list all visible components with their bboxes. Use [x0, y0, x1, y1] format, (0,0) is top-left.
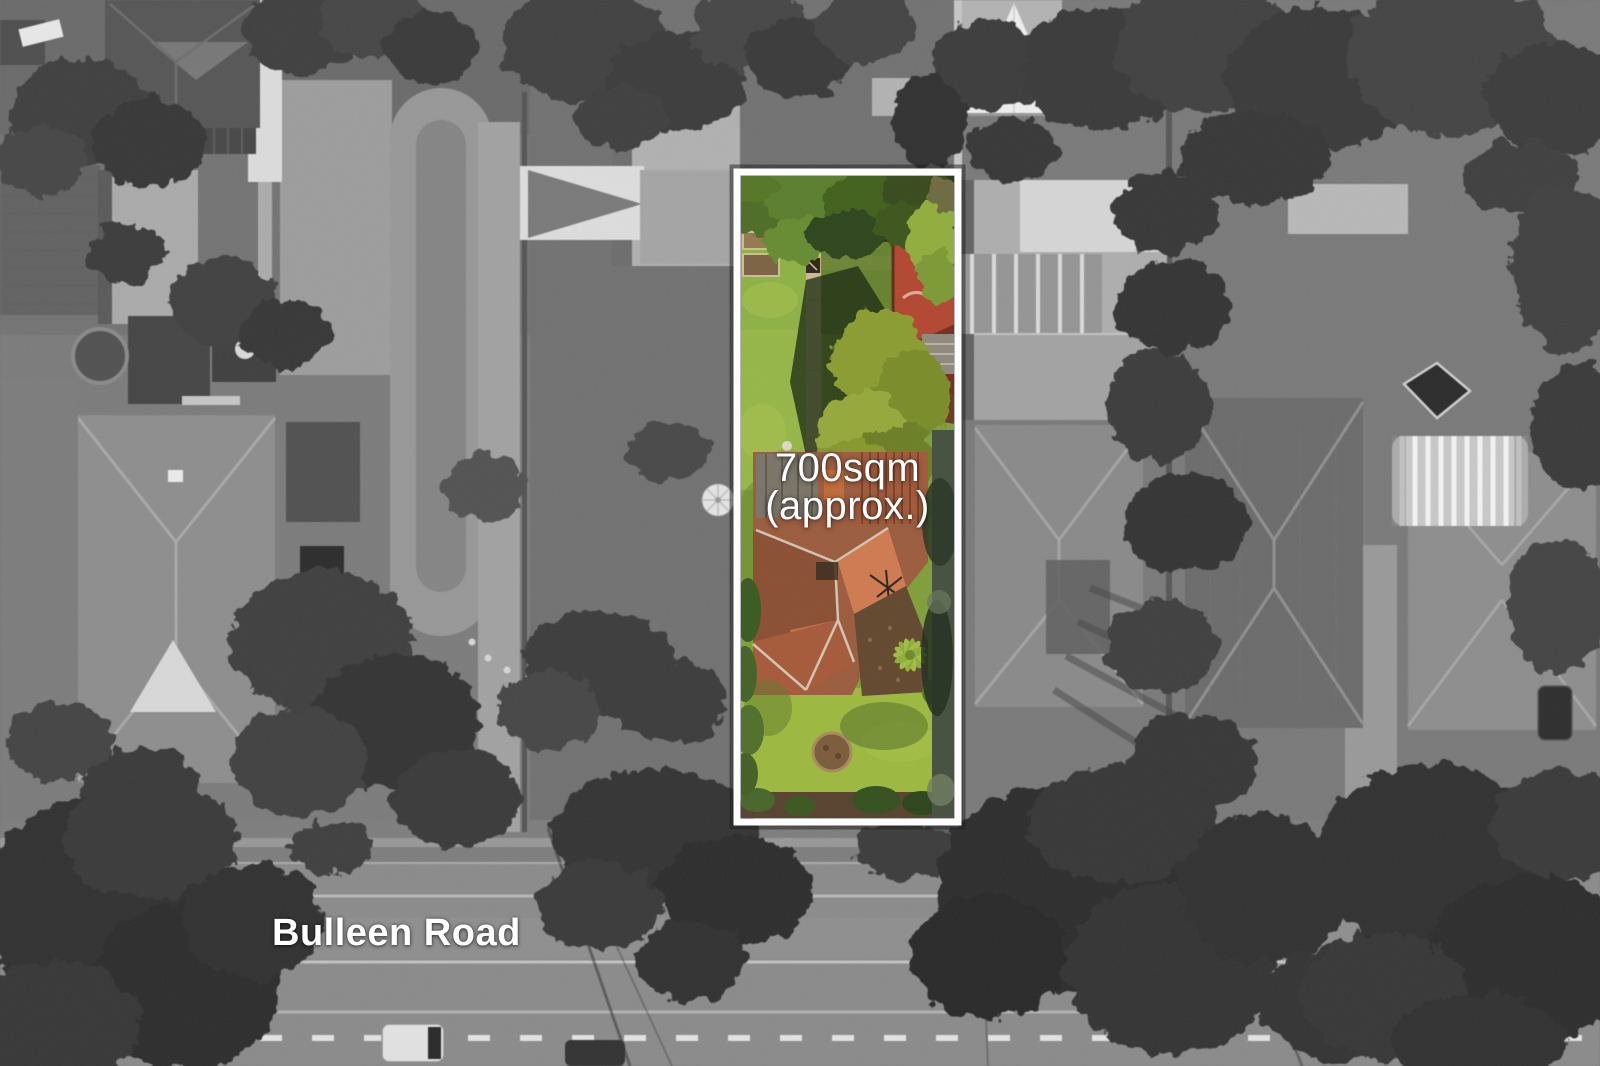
- area-label-line2: (approx.): [737, 487, 958, 525]
- road-label: Bulleen Road: [272, 912, 521, 955]
- area-label-line1: 700sqm: [737, 449, 958, 487]
- aerial-photo: 700sqm (approx.) Bulleen Road: [0, 0, 1600, 1066]
- film-grain-overlay: [0, 0, 1600, 1066]
- area-label: 700sqm (approx.): [737, 449, 958, 525]
- aerial-photo-svg: [0, 0, 1600, 1066]
